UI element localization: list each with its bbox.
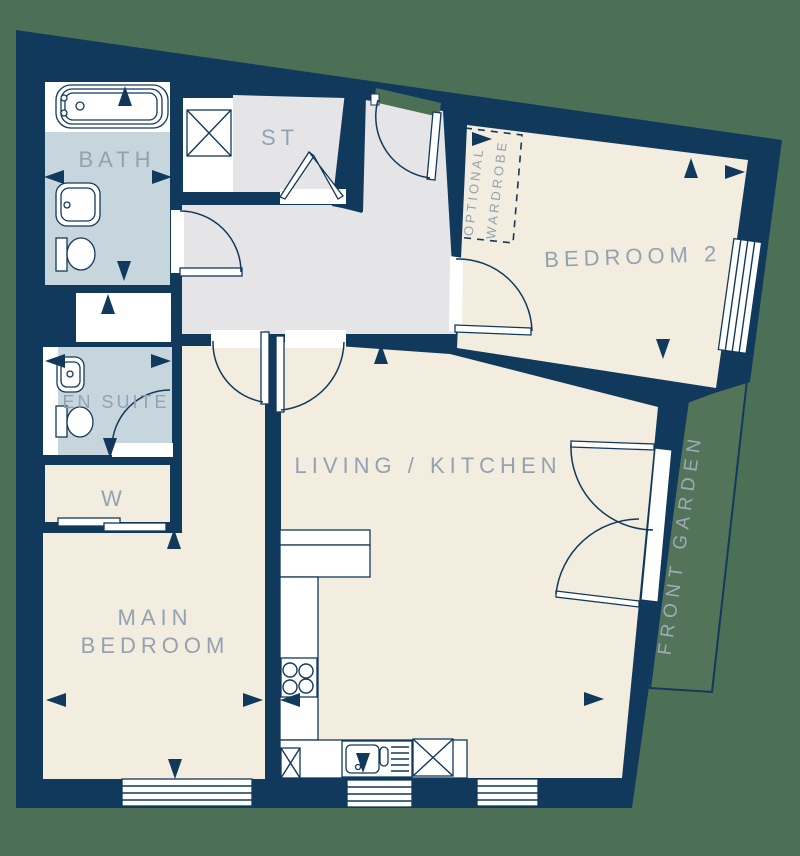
label-wardrobe: W	[101, 486, 127, 511]
washbasin-tap-icon	[67, 371, 73, 377]
window-kitchen	[347, 780, 412, 807]
kitchen-bottom-counter	[280, 739, 467, 778]
label-ensuite: EN SUITE	[62, 392, 169, 412]
door-opening	[211, 330, 264, 348]
label-storage: ST	[261, 125, 299, 150]
bath-tap-icon	[61, 95, 67, 101]
bath-washbasin	[56, 183, 100, 226]
sliding-panel	[104, 523, 166, 531]
door-opening	[449, 256, 463, 333]
bathtub	[45, 82, 170, 132]
label-bath: BATH	[78, 147, 155, 172]
floorplan-drawing: BATH ST BEDROOM 2 OPTIONAL WARDROBE EN S…	[0, 0, 800, 856]
door-opening	[112, 443, 173, 457]
door-leaf	[261, 332, 269, 404]
worktop	[280, 545, 370, 577]
label-main-bedroom-1: MAIN	[118, 605, 193, 630]
window-main-bedroom	[122, 779, 252, 806]
bath-tap-icon	[61, 110, 67, 116]
bath-toilet	[56, 238, 95, 271]
worktop	[280, 530, 370, 545]
bath-drain-icon	[76, 102, 84, 110]
sink-tap-icon	[380, 747, 388, 766]
toilet-cistern	[56, 238, 67, 271]
floorplan-page: BATH ST BEDROOM 2 OPTIONAL WARDROBE EN S…	[0, 0, 800, 856]
washbasin-tap-icon	[64, 202, 70, 208]
label-main-bedroom-2: BEDROOM	[81, 633, 230, 658]
shower-tray	[75, 292, 172, 343]
window-living	[477, 779, 538, 806]
sink-drain-icon	[356, 765, 361, 770]
kitchen-peninsula	[280, 530, 370, 577]
door-leaf	[180, 268, 242, 276]
kitchen-left-counter	[280, 577, 318, 740]
storage-cupboard	[187, 110, 231, 156]
label-living-kitchen: LIVING / KITCHEN	[294, 453, 561, 478]
door-opening	[171, 210, 184, 273]
door-opening	[285, 330, 346, 348]
door-leaf	[276, 336, 284, 412]
toilet-bowl	[67, 238, 95, 270]
